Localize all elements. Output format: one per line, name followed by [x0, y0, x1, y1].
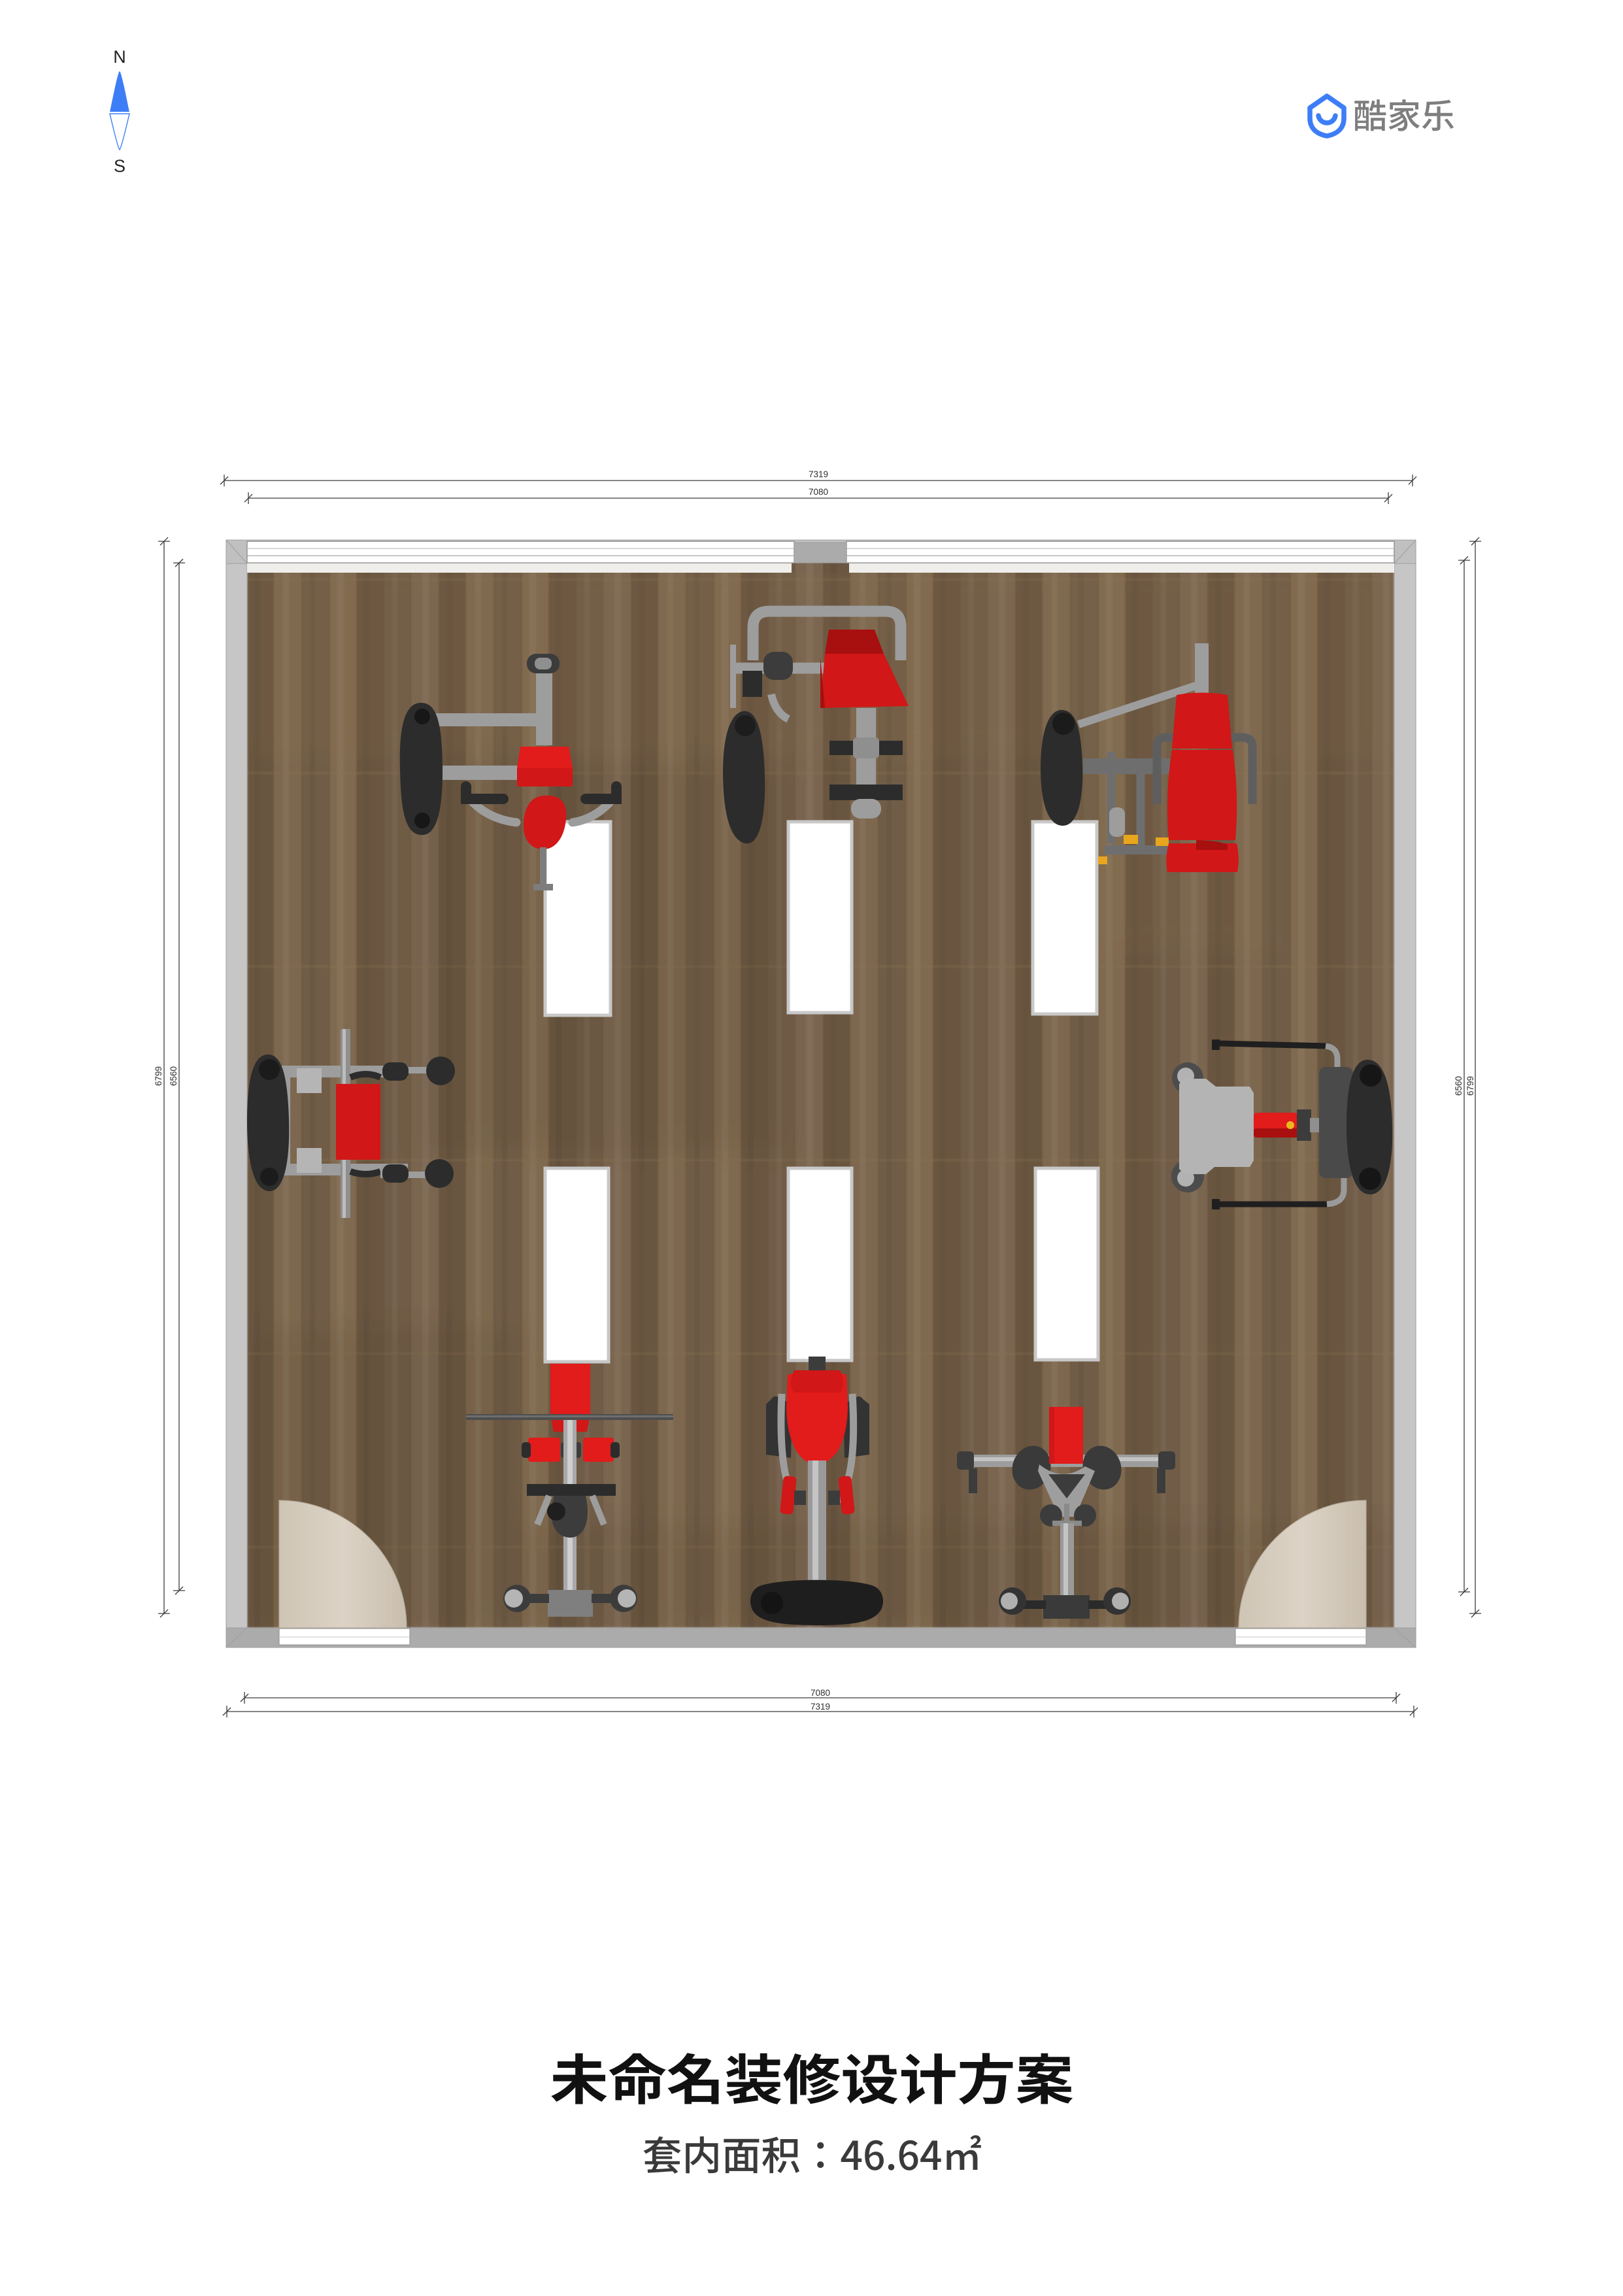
- svg-text:7080: 7080: [809, 487, 828, 497]
- svg-text:7319: 7319: [809, 469, 828, 479]
- svg-text:7080: 7080: [811, 1688, 830, 1698]
- svg-text:N: N: [113, 47, 126, 67]
- svg-text:6799: 6799: [1465, 1076, 1475, 1096]
- svg-text:6799: 6799: [154, 1066, 163, 1086]
- svg-text:S: S: [114, 156, 125, 176]
- svg-text:7319: 7319: [811, 1702, 830, 1712]
- svg-text:6560: 6560: [169, 1066, 178, 1086]
- svg-text:6560: 6560: [1454, 1076, 1464, 1096]
